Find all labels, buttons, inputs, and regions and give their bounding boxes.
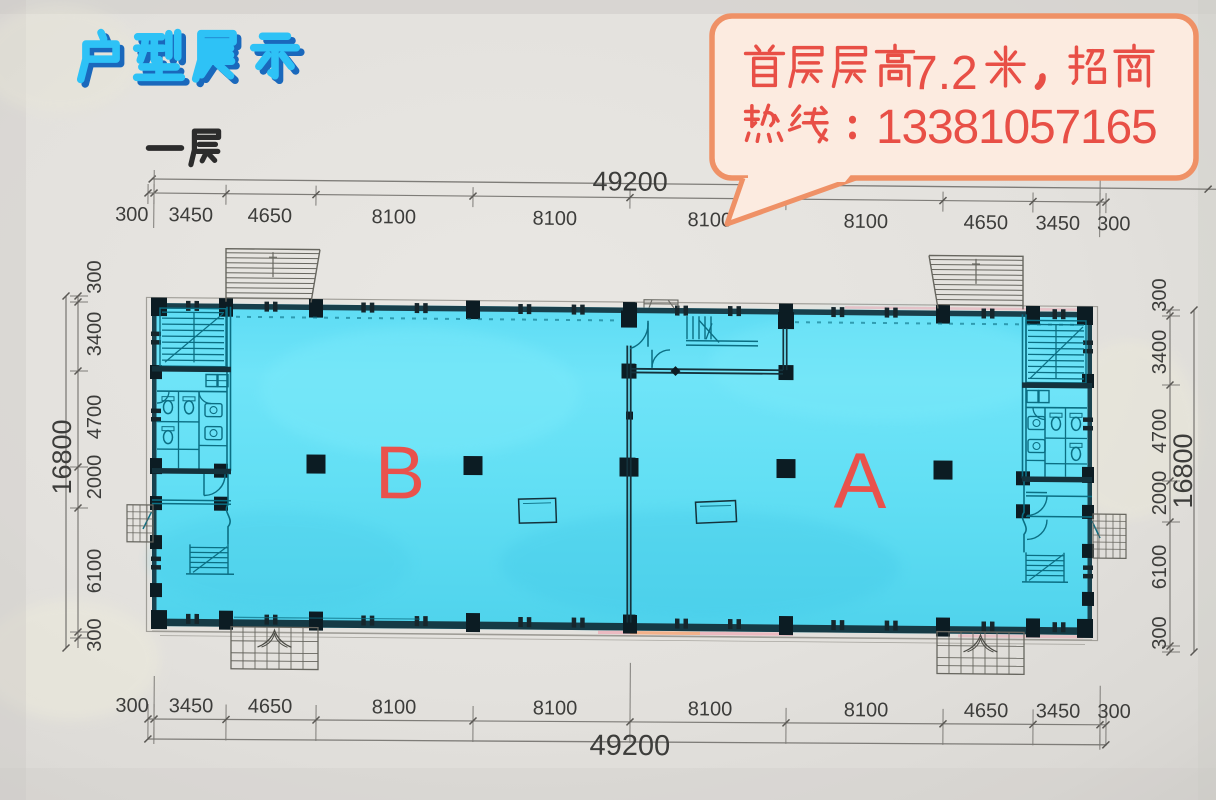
svg-text:16800: 16800 [47,419,77,494]
svg-text:300: 300 [115,204,149,226]
svg-text:300: 300 [84,618,106,651]
svg-text:300: 300 [1149,616,1171,649]
svg-text:3400: 3400 [1149,330,1171,375]
svg-text:8100: 8100 [532,208,577,230]
svg-text:3450: 3450 [168,204,213,226]
svg-text:49200: 49200 [589,730,670,762]
svg-text:8100: 8100 [688,698,733,720]
svg-text:4700: 4700 [1149,409,1171,454]
svg-text:8100: 8100 [533,697,578,719]
svg-text:13381057165: 13381057165 [876,101,1156,154]
svg-text:16800: 16800 [1168,433,1198,508]
svg-text:8100: 8100 [844,699,889,721]
svg-text:4650: 4650 [964,700,1009,722]
svg-text:300: 300 [1149,278,1171,311]
svg-text:3400: 3400 [84,312,106,357]
svg-text:2000: 2000 [84,455,106,500]
svg-text:300: 300 [1097,701,1131,723]
svg-text:8100: 8100 [843,211,888,233]
svg-text:4650: 4650 [248,696,293,718]
svg-text:7.2: 7.2 [911,47,978,100]
svg-text:3450: 3450 [169,695,214,717]
svg-text:49200: 49200 [592,166,667,197]
svg-text:3450: 3450 [1035,212,1080,234]
svg-text:B: B [375,430,425,514]
svg-text:4700: 4700 [84,395,106,440]
svg-text:4650: 4650 [247,205,292,227]
svg-text:300: 300 [84,260,106,293]
svg-text:300: 300 [1097,213,1131,235]
svg-text:8100: 8100 [372,696,417,718]
svg-text:3450: 3450 [1036,700,1081,722]
svg-text:4650: 4650 [963,212,1008,234]
svg-text:6100: 6100 [84,549,106,594]
svg-text:300: 300 [115,695,149,717]
svg-text:8100: 8100 [371,206,416,228]
svg-text:6100: 6100 [1149,545,1171,590]
svg-text:2000: 2000 [1149,471,1171,516]
svg-text:8100: 8100 [687,209,732,231]
svg-text:A: A [834,436,887,526]
